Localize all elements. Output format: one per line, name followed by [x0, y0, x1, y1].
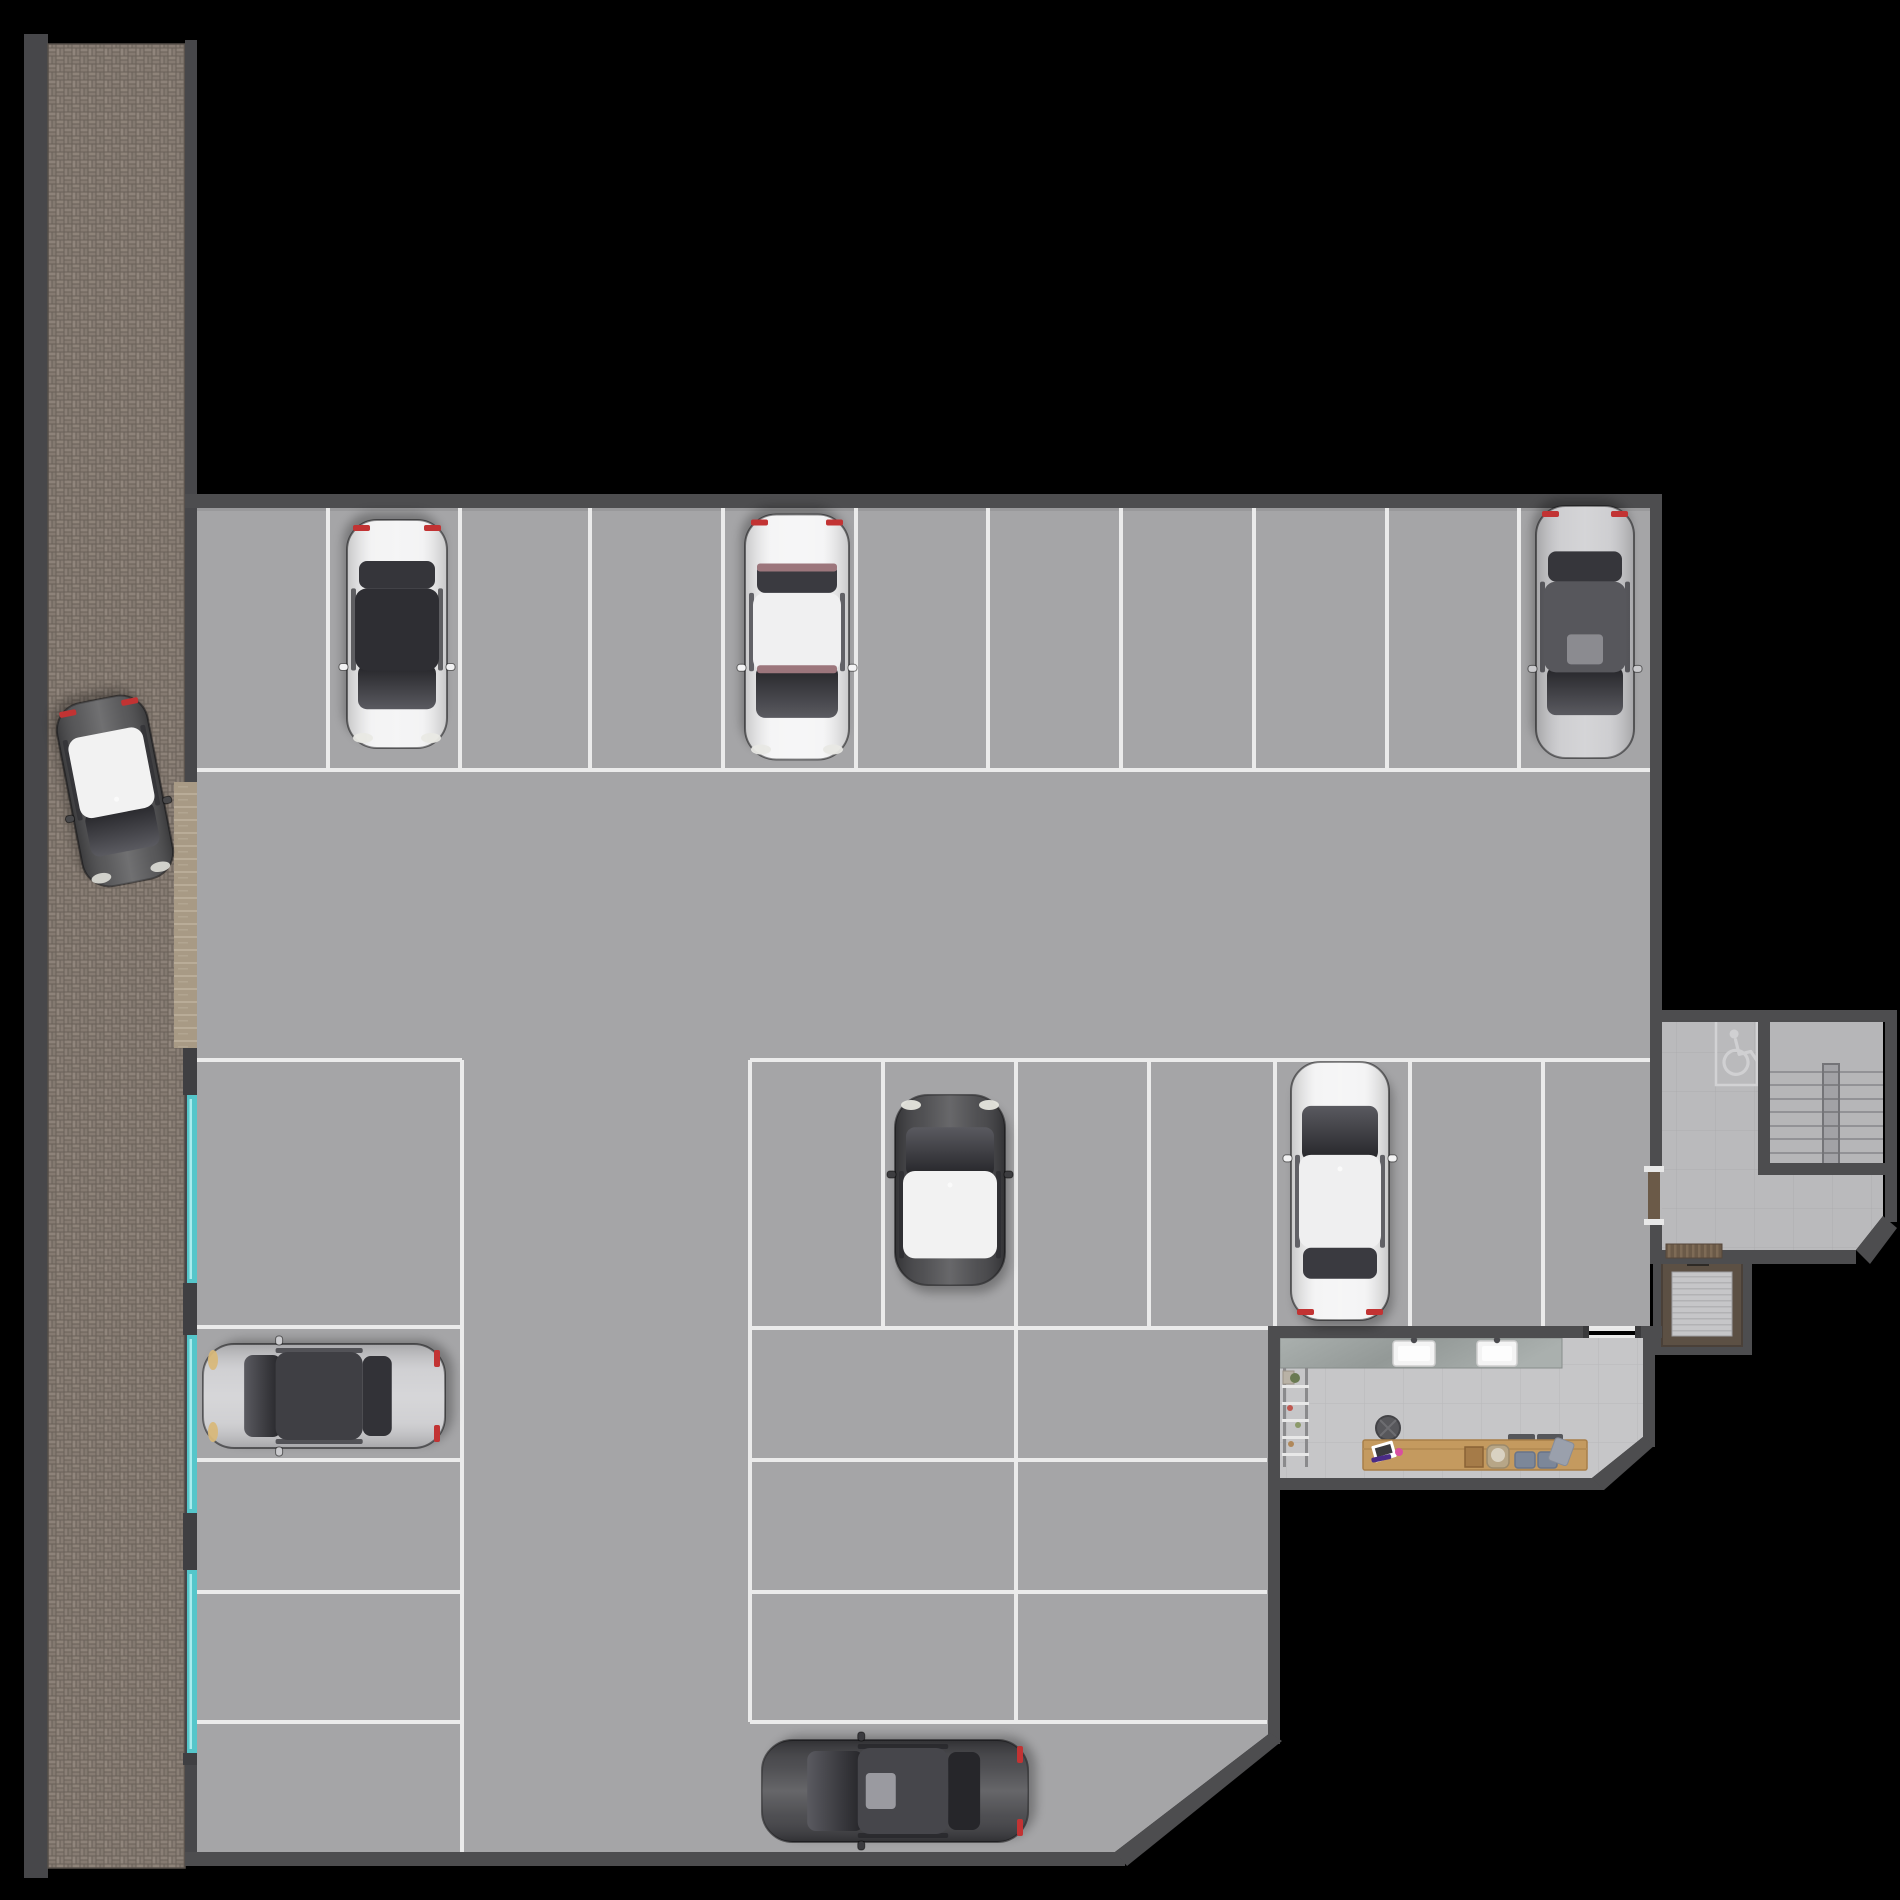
car-rear-window [1303, 1248, 1377, 1279]
car-rear-window [1548, 551, 1622, 581]
wall-edge-highlight [197, 508, 1650, 511]
car-taillight [424, 525, 441, 531]
sink-basin [1398, 1346, 1430, 1361]
wall-pilaster [183, 1048, 199, 1095]
car-taillight [1542, 511, 1559, 517]
car-taillight [1297, 1309, 1314, 1315]
teal-light-core [190, 1574, 193, 1749]
car-antenna-dot [948, 1183, 953, 1188]
elevator-doormat [1666, 1244, 1722, 1258]
car-mirror [858, 1732, 865, 1741]
wall [1758, 1163, 1897, 1175]
sidewalk [24, 34, 199, 1878]
car-roof [66, 725, 156, 820]
parking-floor-plan [0, 0, 1900, 1900]
car-mirror [276, 1336, 283, 1345]
basket-contents [1491, 1448, 1505, 1462]
rack-item [1295, 1422, 1301, 1428]
wall [1650, 494, 1662, 1024]
teal-light-core [190, 1099, 193, 1279]
wooden-box [1465, 1447, 1483, 1467]
stair-lobby [1662, 1022, 1883, 1250]
car-mirror [1633, 665, 1642, 672]
rack-item [1287, 1405, 1293, 1411]
storage-rack-shelf [1282, 1385, 1309, 1388]
car-windshield [358, 664, 436, 709]
car-mirror [737, 664, 746, 671]
car-mirror [1388, 1155, 1397, 1162]
wall [185, 494, 1662, 508]
car-mirror [1528, 665, 1537, 672]
entry-ramp [174, 782, 199, 1048]
car-windshield [906, 1127, 994, 1177]
car-rear-shelf [757, 564, 837, 572]
office-door-post [1583, 1326, 1589, 1338]
rack-item [1288, 1441, 1294, 1447]
car-dark-sports-car [762, 1732, 1036, 1850]
car-mirror [65, 815, 75, 824]
storage-rack-shelf [1282, 1402, 1309, 1405]
teal-light-core [190, 1339, 193, 1509]
car-mirror [887, 1171, 896, 1178]
office-door-post [1635, 1326, 1641, 1338]
car-rear-window [359, 561, 435, 588]
car-taillight [1366, 1309, 1383, 1315]
car-mirror [848, 664, 857, 671]
sidewalk-right-wall [185, 40, 197, 782]
office-room [1280, 1328, 1643, 1478]
car-antenna-dot [1338, 1166, 1343, 1171]
wall [1885, 1010, 1897, 1222]
car-roof [276, 1352, 363, 1440]
car-silver-coupe [203, 1336, 453, 1456]
storage-rack-shelf [1282, 1419, 1309, 1422]
storage-rack-shelf [1282, 1453, 1309, 1456]
elevator-car-floor [1672, 1272, 1732, 1336]
car-rear-window [948, 1752, 980, 1830]
door-frame-cap [1644, 1219, 1664, 1225]
car-windshield [1302, 1106, 1378, 1161]
car-taillight [1017, 1746, 1023, 1763]
car-roof [355, 588, 439, 670]
wall [1650, 1010, 1897, 1022]
car-taillight [1017, 1819, 1023, 1836]
car-headlight [979, 1100, 999, 1110]
car-taillight [1611, 511, 1628, 517]
car-windshield [1547, 666, 1623, 715]
car-mirror [858, 1841, 865, 1850]
elevator [1653, 1250, 1752, 1355]
car-dashboard [757, 665, 837, 673]
car-taillight [751, 520, 768, 526]
car-headlight [751, 745, 771, 755]
car-taillight [434, 1425, 440, 1442]
sink-basin [1482, 1346, 1512, 1361]
car-headlight [208, 1350, 218, 1370]
car-headlight [353, 733, 373, 743]
car-sunroof [1567, 634, 1603, 664]
floor-plan-svg [0, 0, 1900, 1900]
wall [1758, 1022, 1770, 1175]
wall [1268, 1478, 1604, 1490]
car-taillight [434, 1350, 440, 1367]
wall [1268, 1326, 1585, 1338]
wall-pilaster [183, 1513, 199, 1570]
car-headlight [208, 1422, 218, 1442]
car-rear-window [363, 1356, 392, 1436]
car-top-row-white-hatchback [339, 512, 455, 748]
wall-pilaster [183, 1753, 199, 1765]
office-door-rail [1585, 1328, 1638, 1331]
car-windshield [807, 1751, 864, 1831]
cushion [1515, 1452, 1535, 1468]
car-mirror [162, 796, 172, 805]
car-mini-hatchback [887, 1095, 1013, 1293]
car-mirror [1283, 1155, 1292, 1162]
car-mirror [339, 663, 348, 670]
car-sunroof [866, 1773, 896, 1809]
office-door-rail [1585, 1335, 1638, 1338]
car-mirror [276, 1447, 283, 1456]
car-white-suv [1283, 1062, 1397, 1328]
brick-pavement [48, 44, 185, 1868]
sidewalk-left-wall [24, 34, 48, 1878]
door-leaf [1648, 1172, 1660, 1221]
car-headlight [823, 745, 843, 755]
car-mirror [446, 663, 455, 670]
wall [1650, 1225, 1662, 1252]
car-top-row-luxury-sedan [737, 507, 857, 760]
car-taillight [353, 525, 370, 531]
car-mirror [1004, 1171, 1013, 1178]
wall [185, 1852, 1125, 1866]
car-headlight [901, 1100, 921, 1110]
storage-rack-rail [1305, 1368, 1308, 1467]
wall-pilaster [183, 1283, 199, 1335]
car-roof [753, 593, 841, 671]
wall [1643, 1326, 1655, 1447]
car-top-row-silver-sedan [1528, 498, 1642, 758]
wall [1268, 1326, 1280, 1744]
pink-accessory [1395, 1448, 1403, 1456]
wall [1650, 1012, 1662, 1168]
storage-rack-shelf [1282, 1436, 1309, 1439]
potted-plant-icon [1290, 1373, 1300, 1383]
door-frame-cap [1644, 1166, 1664, 1172]
car-taillight [826, 520, 843, 526]
car-headlight [421, 733, 441, 743]
